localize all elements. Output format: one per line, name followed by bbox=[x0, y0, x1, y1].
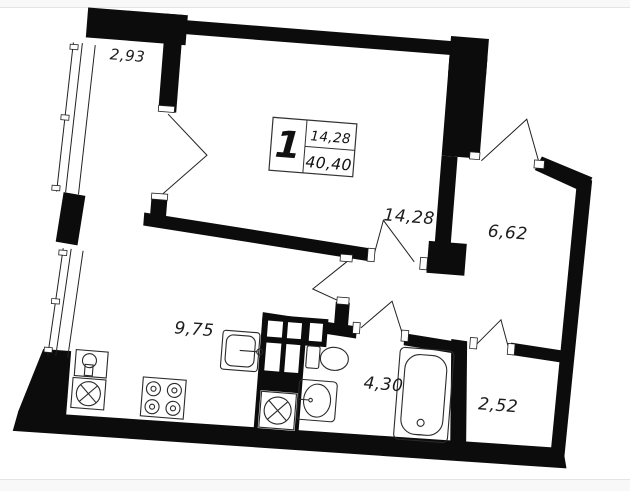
living-room-area-label: 14,28 bbox=[383, 205, 436, 229]
floor-plan-canvas: 1 14,28 40,40 2,93 14,28 6,62 9,75 4,30 … bbox=[0, 0, 630, 491]
washing-machine-2-icon bbox=[258, 390, 298, 431]
storage-area-label: 2,52 bbox=[478, 394, 519, 417]
apartment-badge: 1 14,28 40,40 bbox=[269, 117, 357, 176]
hallway-area-label: 6,62 bbox=[487, 222, 528, 245]
top-band bbox=[0, 0, 630, 7]
kitchen-area-label: 9,75 bbox=[174, 318, 215, 341]
balcony-area-label: 2,93 bbox=[109, 45, 146, 66]
shaft-cell bbox=[309, 323, 323, 342]
shaft-cell bbox=[284, 344, 300, 373]
wall-junction-block bbox=[426, 241, 466, 276]
wall-living-hall-upper bbox=[442, 55, 488, 159]
badge-total-area: 40,40 bbox=[305, 153, 353, 175]
bathroom-area-label: 4,30 bbox=[363, 373, 404, 396]
badge-rooms-count: 1 bbox=[273, 123, 302, 168]
floor-plan-page: 1 14,28 40,40 2,93 14,28 6,62 9,75 4,30 … bbox=[0, 0, 630, 491]
shaft-cell bbox=[264, 342, 281, 371]
shaft-cell bbox=[267, 321, 283, 338]
badge-living-area: 14,28 bbox=[310, 128, 352, 147]
shaft-cell bbox=[287, 322, 302, 339]
bottom-band bbox=[0, 479, 630, 491]
